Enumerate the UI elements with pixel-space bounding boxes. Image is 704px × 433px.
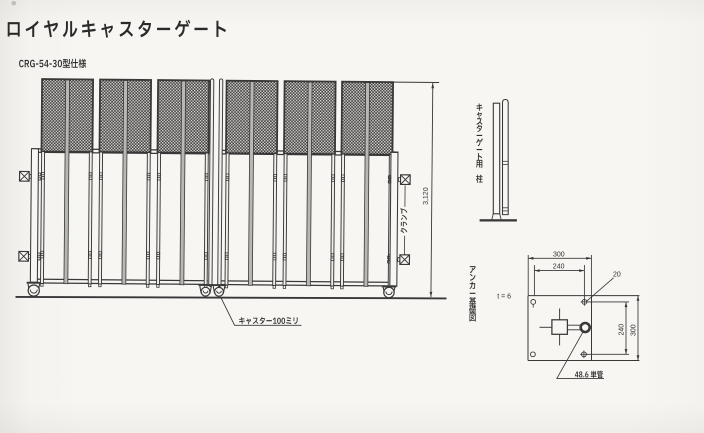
svg-text:300: 300 — [553, 251, 565, 258]
svg-text:240: 240 — [553, 264, 565, 271]
svg-text:300: 300 — [630, 324, 637, 336]
svg-text:20: 20 — [613, 271, 621, 278]
svg-text:3,120: 3,120 — [423, 187, 430, 205]
svg-text:t = 6: t = 6 — [497, 293, 511, 300]
svg-text:240: 240 — [618, 324, 625, 336]
